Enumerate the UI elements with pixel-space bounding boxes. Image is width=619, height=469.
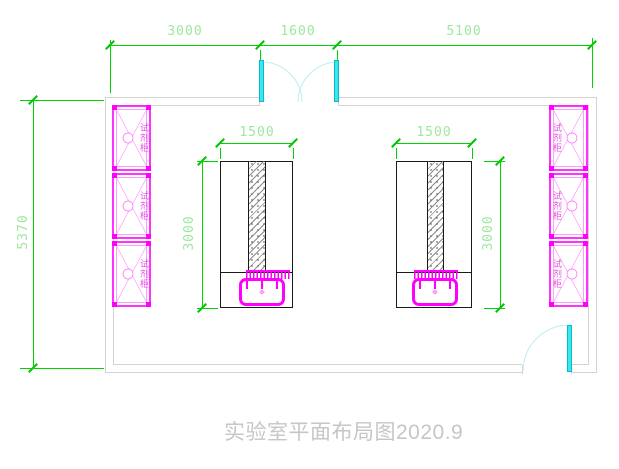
reagent-cabinet-cell: 试剂柜 [112,241,151,307]
drawing-title: 实验室平面布局图2020.9 [224,416,463,446]
bench-hatch-column [248,161,266,273]
reagent-cabinet-label: 试剂柜 [139,123,148,153]
bench-hatch-column [427,161,444,273]
dim-line-bench-width [396,143,472,144]
double-door-swing-arc-icon [261,62,339,103]
dim-extension-line [592,38,593,88]
dim-label-top-left: 3000 [155,24,215,39]
reagent-cabinet-label: 试剂柜 [139,191,148,221]
reagent-cabinet-cell: 试剂柜 [112,105,151,171]
door-leaf [334,60,339,102]
dim-label-top-right: 5100 [433,24,495,39]
dim-line-bench-depth [202,161,203,308]
dim-label-right-bench-width: 1500 [404,125,464,140]
dim-extension-line [472,148,473,159]
reagent-cabinet-cell: 试剂柜 [112,173,151,239]
dim-extension-line [293,148,294,159]
dim-extension-line [220,148,221,159]
dim-line-bench-width [220,143,293,144]
sink-icon [239,278,285,306]
reagent-cabinet-cell: 试剂柜 [549,105,588,171]
reagent-cabinet-label: 试剂柜 [552,123,561,153]
dim-extension-line [110,40,111,93]
door-leaf [567,325,572,372]
dim-line-bench-depth [500,161,501,308]
floorplan-canvas: 3000 1600 5100 5370 试剂柜 [0,0,619,469]
reagent-cabinet-cell: 试剂柜 [549,241,588,307]
dim-line-top [110,45,592,46]
dim-label-left-bench-depth: 3000 [183,203,197,263]
sink-icon [412,278,458,306]
dim-extension-line [396,148,397,159]
reagent-cabinet-label: 试剂柜 [139,259,148,289]
dim-extension-line [484,308,505,309]
single-door-swing-arc-icon [523,325,570,372]
dim-label-right-bench-depth: 3000 [482,203,496,263]
dim-extension-line [197,161,218,162]
dim-extension-line [20,100,104,101]
dim-line-left-overall [33,100,34,368]
dim-label-overall-height: 5370 [17,202,31,262]
door-leaf [259,60,264,102]
dim-extension-line [197,308,218,309]
dim-label-top-middle: 1600 [270,24,326,39]
reagent-cabinet-cell: 试剂柜 [549,173,588,239]
reagent-cabinet-label: 试剂柜 [552,191,561,221]
reagent-cabinet-label: 试剂柜 [552,259,561,289]
dim-extension-line [20,368,104,369]
reagent-cabinet-left-column: 试剂柜 试剂柜 试剂柜 [112,105,151,307]
reagent-cabinet-right-column: 试剂柜 试剂柜 试剂柜 [549,105,588,307]
dim-extension-line [484,161,505,162]
dim-label-left-bench-width: 1500 [227,125,287,140]
